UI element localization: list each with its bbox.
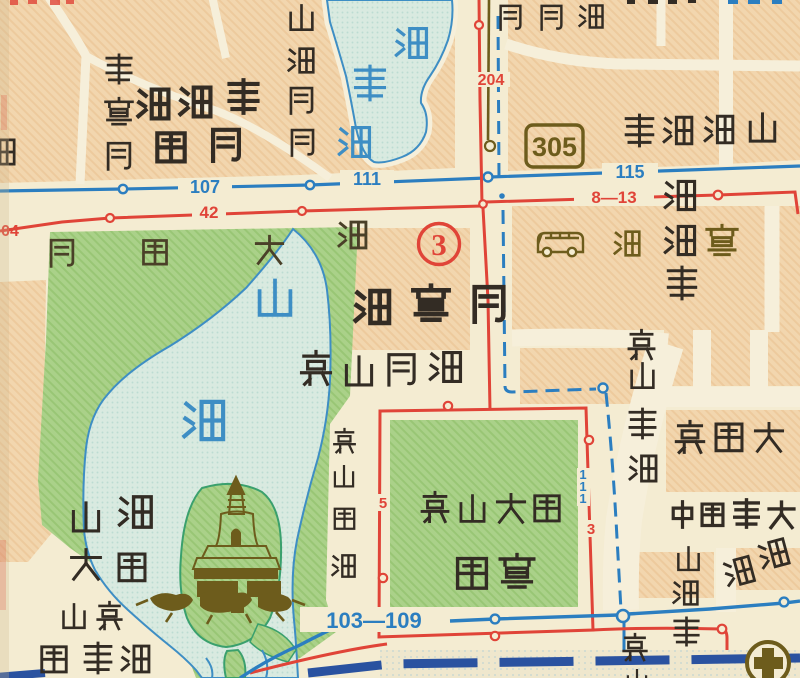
svg-text:5: 5 xyxy=(379,495,387,512)
svg-text:1: 1 xyxy=(579,491,586,506)
svg-text:107: 107 xyxy=(190,177,220,197)
svg-text:111: 111 xyxy=(353,169,381,189)
svg-text:115: 115 xyxy=(615,162,644,182)
svg-text:305: 305 xyxy=(532,132,577,162)
svg-text:42: 42 xyxy=(200,203,219,222)
svg-text:3: 3 xyxy=(587,521,595,538)
svg-text:204: 204 xyxy=(478,72,505,89)
svg-text:8—13: 8—13 xyxy=(591,188,636,207)
svg-text:103—109: 103—109 xyxy=(326,608,421,633)
svg-text:3: 3 xyxy=(431,227,447,262)
